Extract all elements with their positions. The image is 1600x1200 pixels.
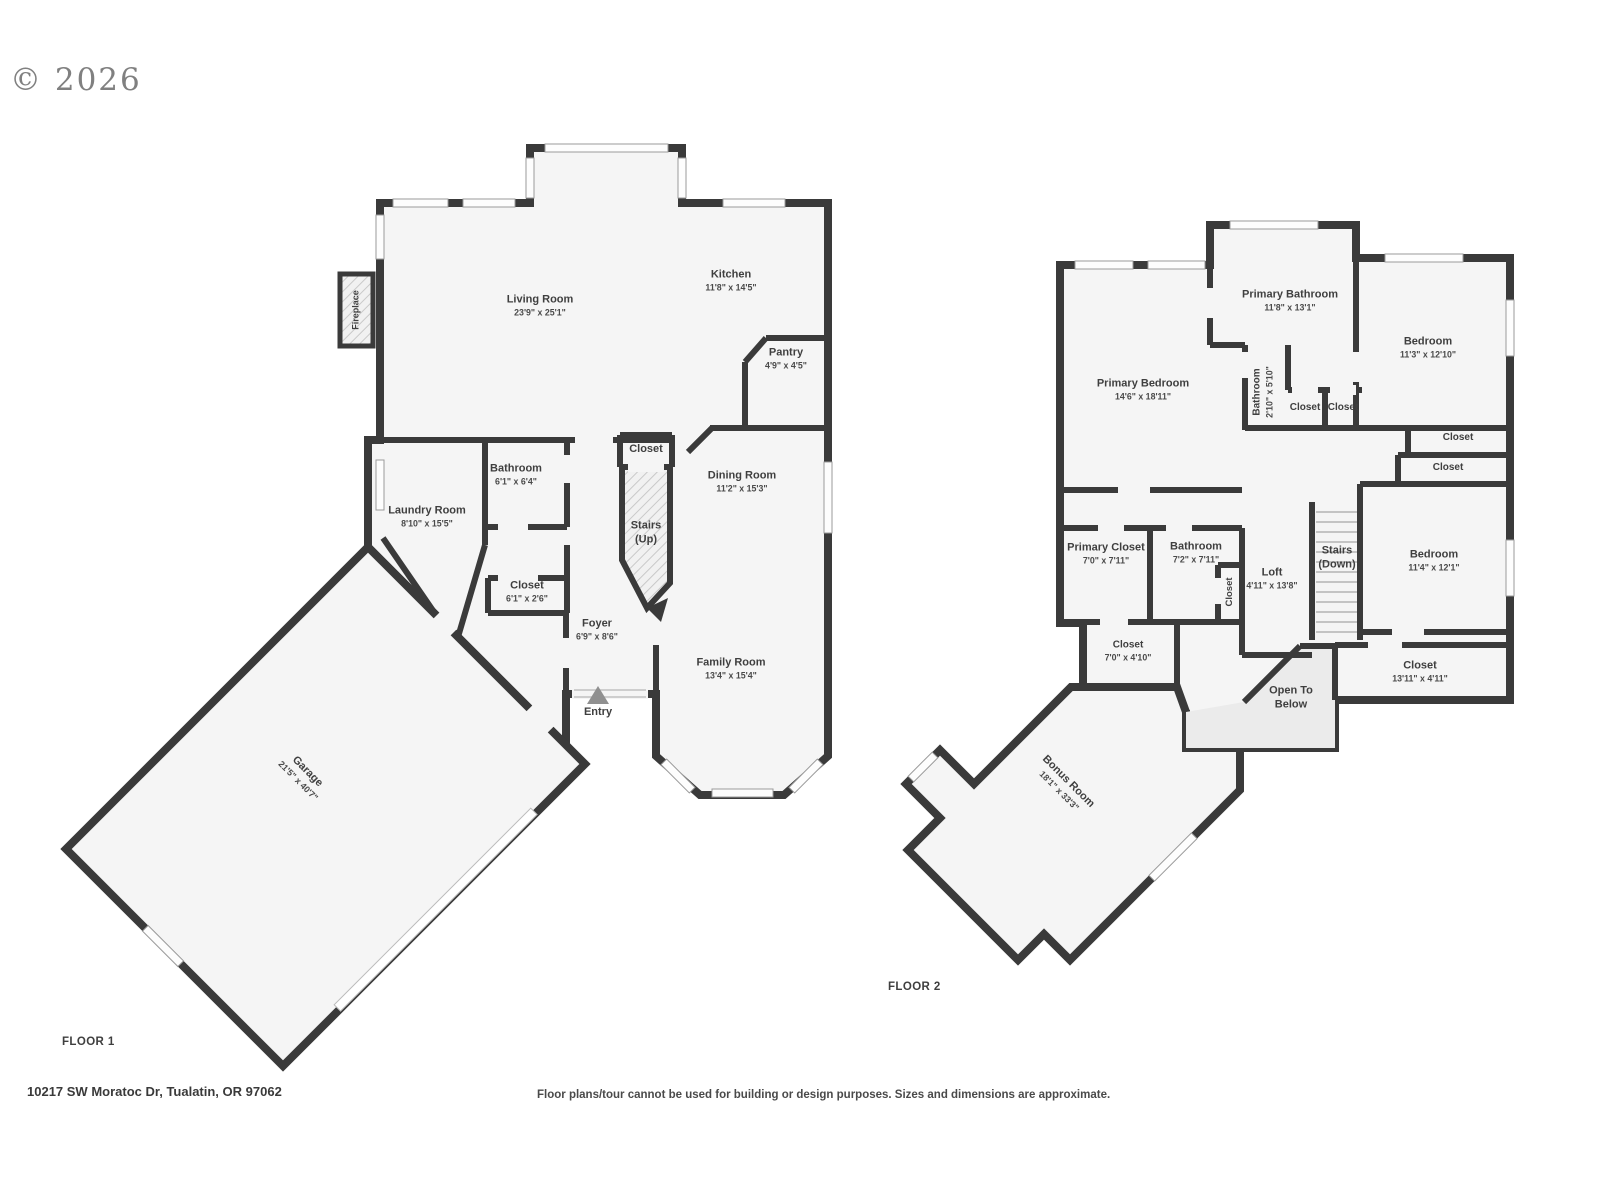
floor2-plan (906, 221, 1514, 960)
fireplace-box (340, 274, 373, 346)
disclaimer-text: Floor plans/tour cannot be used for buil… (537, 1089, 1110, 1101)
floor1-label: FLOOR 1 (62, 1036, 115, 1048)
floor1-plan (66, 144, 832, 1066)
property-address: 10217 SW Moratoc Dr, Tualatin, OR 97062 (27, 1084, 282, 1099)
copyright-watermark: © 2026 (10, 62, 142, 98)
floor2-label: FLOOR 2 (888, 981, 941, 993)
floor-plan-drawing (0, 0, 1600, 1200)
floor-plan-page: Living Room 23'9" x 25'1" Kitchen 11'8" … (0, 0, 1600, 1200)
